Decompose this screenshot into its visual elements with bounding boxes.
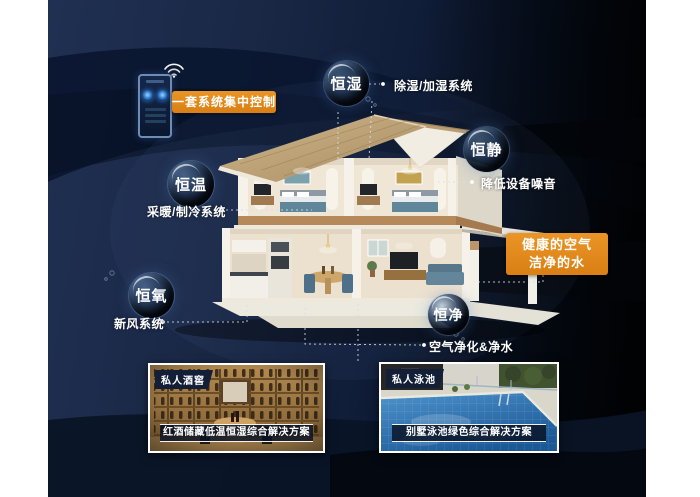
bubble-text: 恒温 — [175, 174, 207, 195]
wine-cellar-tag: 私人酒窖 — [155, 370, 213, 389]
label-fresh-air-system: 新风系统 — [114, 315, 164, 332]
bubble-constant-quiet: 恒静 — [464, 127, 509, 172]
label-air-water-purification: 空气净化&净水 — [429, 338, 513, 355]
bubble-text: 恒净 — [434, 305, 464, 325]
knob-icon — [142, 90, 153, 101]
central-control-callout: 一套系统集中控制 — [172, 91, 276, 113]
bubble-text: 恒氧 — [135, 285, 167, 306]
bubble-constant-humidity: 恒湿 — [324, 61, 369, 106]
pool-caption: 别墅泳池绿色综合解决方案 — [392, 424, 547, 442]
wine-cellar-card: 私人酒窖 红酒储藏低温恒湿综合解决方案 — [148, 363, 325, 453]
panel-row — [145, 108, 166, 111]
panel-row — [145, 114, 166, 117]
callout-line2: 洁净的水 — [506, 254, 608, 272]
smart-control-panel — [138, 74, 172, 138]
wine-cellar-caption: 红酒储藏低温恒湿综合解决方案 — [160, 424, 312, 442]
pool-tag: 私人泳池 — [386, 369, 444, 388]
knob-icon — [157, 90, 168, 101]
label-dehumidify-humidify-system: 除湿/加湿系统 — [394, 77, 473, 94]
infographic-stage: 一套系统集中控制 健康的空气 洁净的水 恒湿 除湿/加湿系统 恒静 降低设备噪音… — [0, 0, 700, 497]
panel-header-bar — [146, 80, 164, 83]
bubble-constant-oxygen: 恒氧 — [129, 273, 174, 318]
callout-line1: 健康的空气 — [506, 236, 608, 254]
label-heating-cooling-system: 采暖/制冷系统 — [147, 203, 226, 220]
panel-knobs — [142, 90, 168, 101]
bubble-constant-temperature: 恒温 — [168, 161, 214, 207]
pool-card: 私人泳池 别墅泳池绿色综合解决方案 — [379, 362, 559, 453]
bubble-text: 恒静 — [470, 139, 502, 160]
bubble-text: 恒湿 — [330, 73, 362, 94]
healthy-air-water-callout: 健康的空气 洁净的水 — [506, 233, 608, 275]
bubble-constant-purity: 恒净 — [428, 294, 469, 335]
label-noise-reduction: 降低设备噪音 — [481, 175, 556, 192]
panel-row — [145, 120, 166, 123]
